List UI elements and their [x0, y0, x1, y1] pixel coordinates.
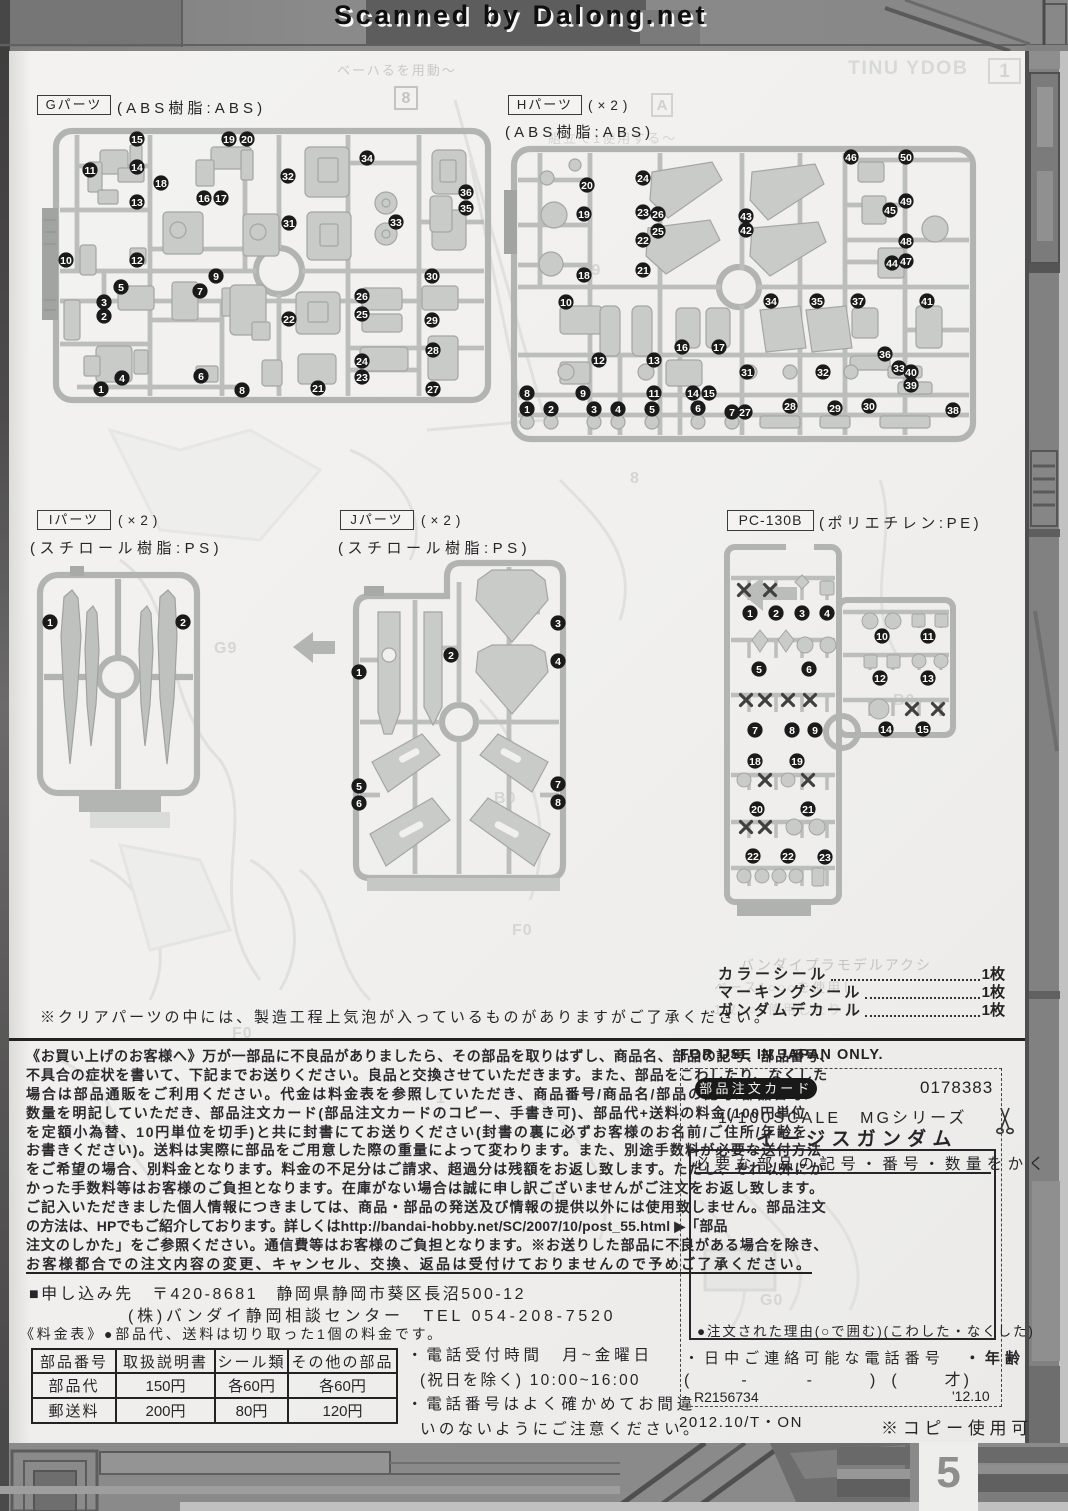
svg-text:3: 3: [555, 618, 561, 630]
svg-text:30: 30: [863, 401, 875, 413]
svg-text:5: 5: [756, 664, 762, 676]
svg-text:29: 29: [426, 315, 438, 327]
svg-text:19: 19: [223, 134, 235, 146]
svg-text:7: 7: [752, 725, 758, 737]
svg-text:4: 4: [615, 404, 621, 416]
svg-text:42: 42: [740, 225, 752, 237]
svg-text:18: 18: [155, 178, 167, 190]
svg-text:11: 11: [922, 631, 933, 643]
svg-text:2: 2: [448, 650, 454, 662]
svg-text:12: 12: [593, 355, 605, 367]
svg-text:22: 22: [747, 851, 759, 863]
svg-text:43: 43: [740, 211, 752, 223]
svg-text:8: 8: [789, 725, 795, 737]
svg-text:3: 3: [591, 404, 597, 416]
svg-text:18: 18: [749, 756, 761, 768]
svg-text:23: 23: [356, 372, 368, 384]
svg-text:10: 10: [60, 255, 72, 267]
svg-text:1: 1: [747, 608, 753, 620]
svg-text:18: 18: [578, 270, 590, 282]
svg-text:17: 17: [215, 193, 227, 205]
svg-text:21: 21: [637, 265, 649, 277]
svg-text:24: 24: [356, 356, 368, 368]
svg-text:3: 3: [101, 297, 107, 309]
svg-text:13: 13: [131, 197, 143, 209]
svg-text:23: 23: [637, 207, 649, 219]
svg-text:15: 15: [917, 724, 929, 736]
svg-text:36: 36: [460, 187, 472, 199]
svg-text:4: 4: [824, 608, 830, 620]
svg-text:25: 25: [652, 226, 664, 238]
svg-text:4: 4: [119, 373, 125, 385]
svg-text:26: 26: [356, 291, 368, 303]
svg-text:11: 11: [648, 388, 659, 400]
svg-text:31: 31: [741, 367, 753, 379]
svg-text:25: 25: [356, 309, 368, 321]
svg-text:1: 1: [47, 617, 53, 629]
svg-text:27: 27: [739, 407, 751, 419]
svg-text:9: 9: [812, 725, 818, 737]
svg-text:2: 2: [101, 311, 107, 323]
svg-text:16: 16: [676, 342, 688, 354]
svg-text:21: 21: [312, 383, 324, 395]
svg-text:6: 6: [806, 664, 812, 676]
svg-text:1: 1: [524, 404, 530, 416]
svg-text:34: 34: [361, 153, 373, 165]
svg-text:6: 6: [695, 403, 701, 415]
svg-text:38: 38: [947, 405, 959, 417]
svg-text:7: 7: [729, 407, 735, 419]
svg-text:2: 2: [548, 404, 554, 416]
svg-text:13: 13: [922, 673, 934, 685]
svg-text:14: 14: [880, 724, 892, 736]
svg-text:13: 13: [648, 355, 660, 367]
svg-text:19: 19: [791, 756, 803, 768]
svg-text:4: 4: [555, 656, 561, 668]
svg-text:17: 17: [713, 342, 725, 354]
svg-text:32: 32: [282, 171, 294, 183]
svg-text:26: 26: [652, 209, 664, 221]
svg-text:8: 8: [524, 388, 530, 400]
svg-text:5: 5: [118, 282, 124, 294]
svg-text:27: 27: [427, 384, 439, 396]
svg-text:6: 6: [356, 798, 362, 810]
svg-text:33: 33: [893, 363, 905, 375]
svg-text:5: 5: [356, 781, 362, 793]
svg-text:11: 11: [84, 165, 95, 177]
svg-text:8: 8: [239, 385, 245, 397]
svg-text:9: 9: [213, 271, 219, 283]
svg-text:7: 7: [197, 286, 203, 298]
svg-text:28: 28: [427, 345, 439, 357]
svg-text:7: 7: [555, 779, 561, 791]
svg-text:16: 16: [198, 193, 210, 205]
svg-text:20: 20: [581, 180, 593, 192]
svg-text:15: 15: [703, 388, 715, 400]
svg-text:14: 14: [687, 388, 699, 400]
svg-text:32: 32: [817, 367, 829, 379]
svg-text:41: 41: [921, 296, 933, 308]
svg-text:6: 6: [198, 371, 204, 383]
svg-text:36: 36: [879, 349, 891, 361]
svg-text:35: 35: [460, 203, 472, 215]
svg-text:1: 1: [98, 384, 104, 396]
svg-text:23: 23: [819, 852, 831, 864]
svg-text:2: 2: [180, 617, 186, 629]
svg-text:50: 50: [900, 152, 912, 164]
svg-text:12: 12: [131, 255, 143, 267]
svg-text:29: 29: [829, 403, 841, 415]
svg-text:49: 49: [900, 196, 912, 208]
svg-text:20: 20: [241, 134, 253, 146]
svg-text:22: 22: [637, 235, 649, 247]
svg-text:22: 22: [283, 314, 295, 326]
svg-text:10: 10: [876, 631, 888, 643]
svg-text:45: 45: [884, 205, 896, 217]
svg-text:28: 28: [784, 401, 796, 413]
svg-text:48: 48: [900, 236, 912, 248]
svg-text:30: 30: [426, 271, 438, 283]
svg-text:22: 22: [782, 851, 794, 863]
svg-text:12: 12: [874, 673, 886, 685]
svg-text:35: 35: [811, 296, 823, 308]
svg-text:37: 37: [852, 296, 864, 308]
svg-text:2: 2: [773, 608, 779, 620]
svg-text:24: 24: [637, 173, 649, 185]
svg-text:9: 9: [580, 388, 586, 400]
svg-text:40: 40: [905, 367, 917, 379]
svg-text:3: 3: [799, 608, 805, 620]
svg-text:21: 21: [802, 804, 814, 816]
svg-text:34: 34: [765, 296, 777, 308]
svg-text:19: 19: [578, 209, 590, 221]
svg-text:44: 44: [886, 258, 898, 270]
svg-text:5: 5: [649, 404, 655, 416]
svg-text:15: 15: [131, 134, 143, 146]
svg-text:10: 10: [560, 297, 572, 309]
svg-text:14: 14: [131, 162, 143, 174]
svg-text:8: 8: [555, 797, 561, 809]
svg-text:46: 46: [845, 152, 857, 164]
svg-text:39: 39: [905, 380, 917, 392]
svg-text:1: 1: [356, 667, 362, 679]
svg-text:31: 31: [283, 218, 295, 230]
svg-text:33: 33: [390, 217, 402, 229]
svg-text:47: 47: [900, 256, 912, 268]
svg-text:20: 20: [751, 804, 763, 816]
